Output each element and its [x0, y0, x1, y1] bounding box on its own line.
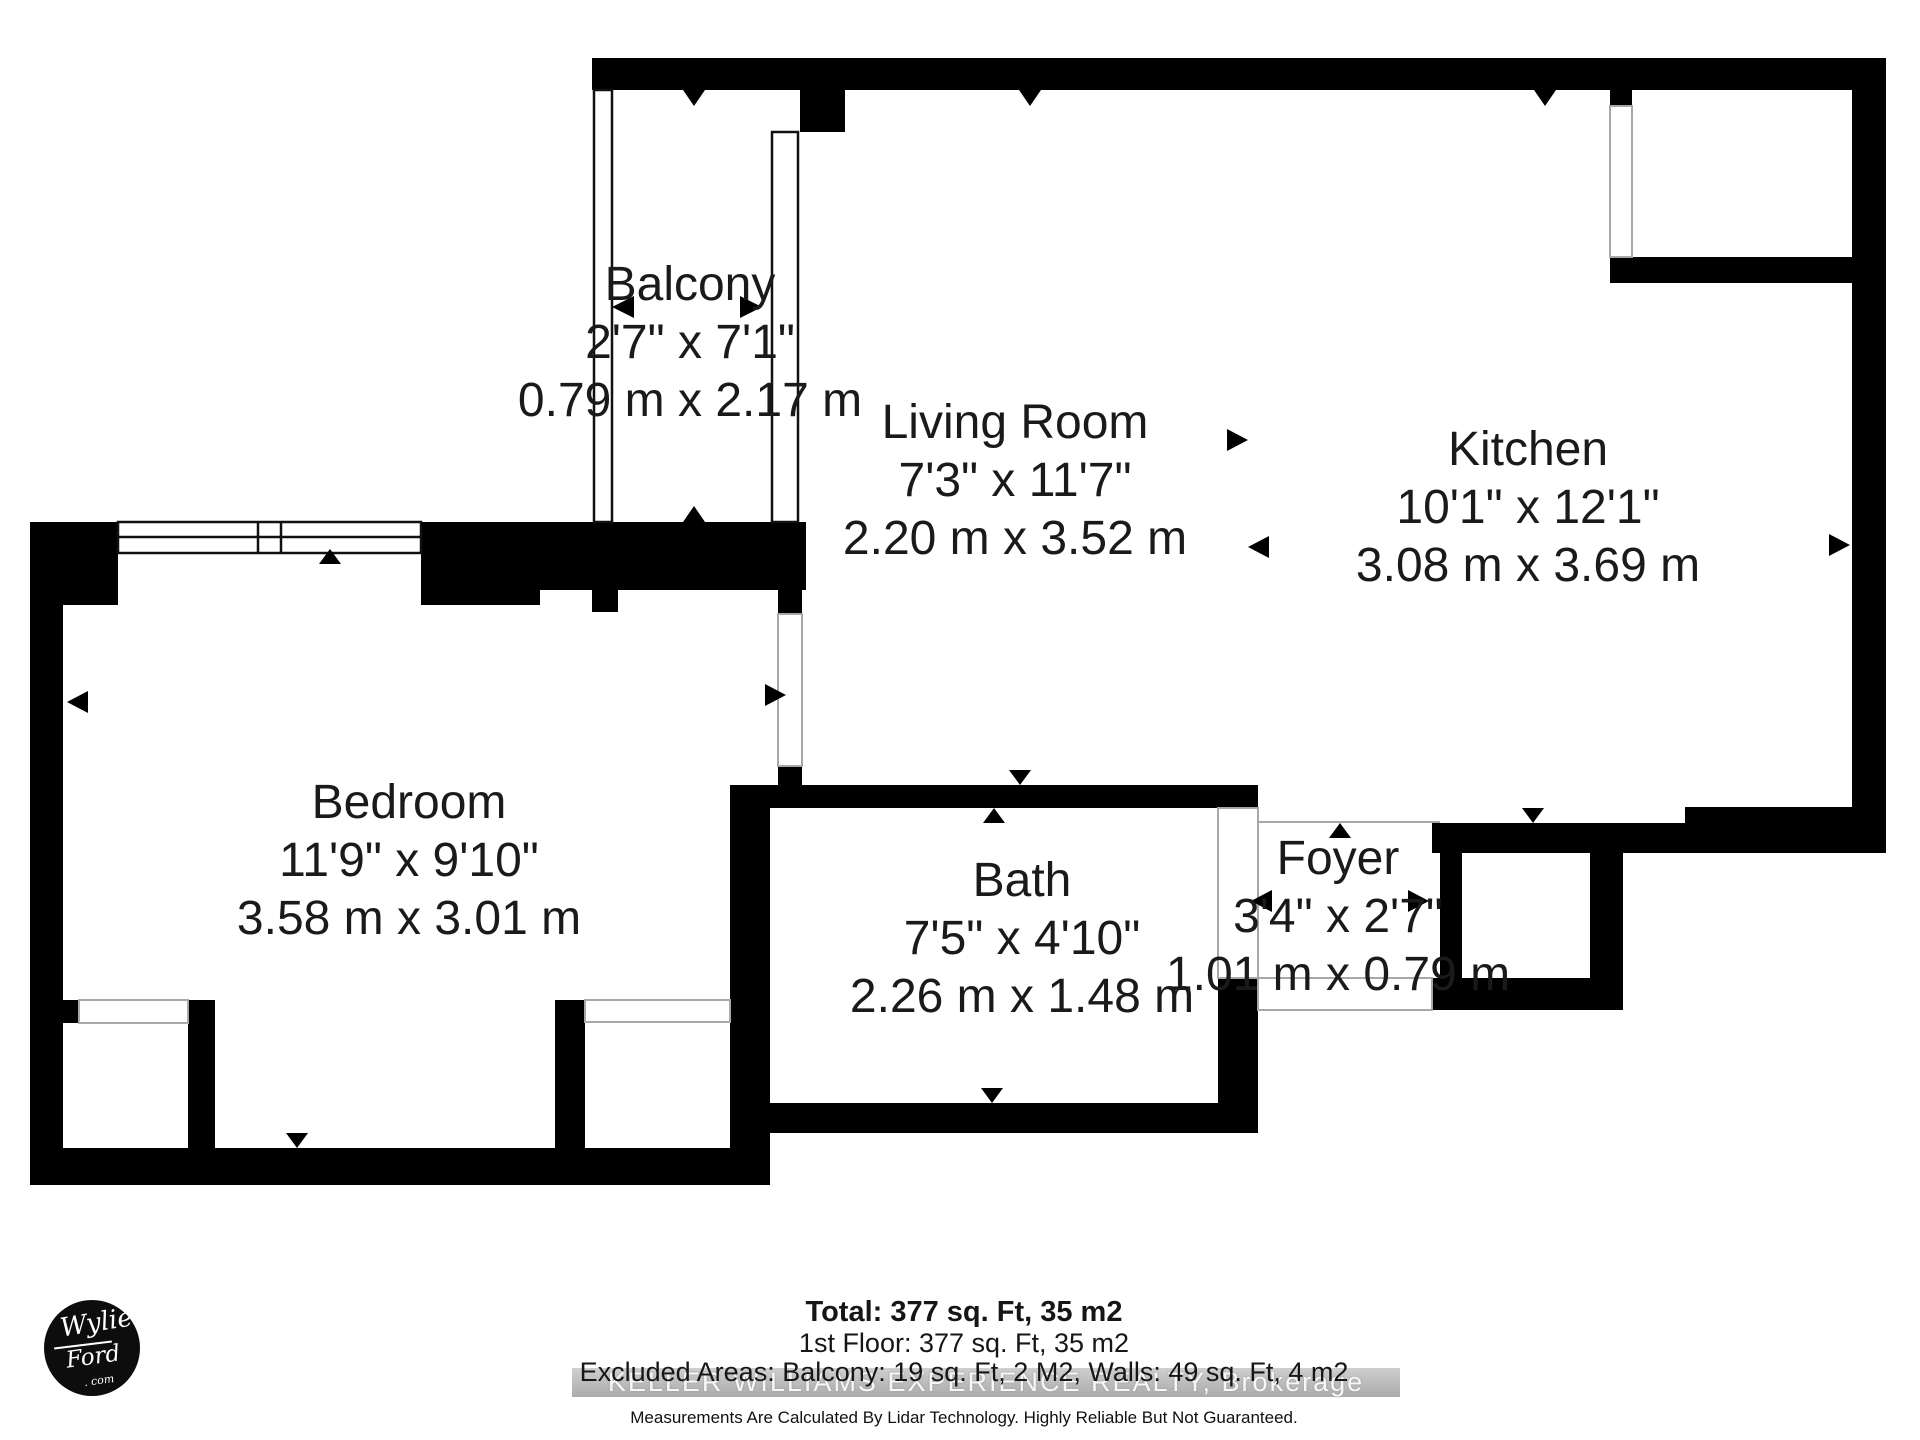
closet-topright-bottom-wall	[1610, 257, 1881, 283]
marker-bath-bottom	[981, 1088, 1003, 1103]
room-label-living-room: Living Room 7'3" x 11'7" 2.20 m x 3.52 m	[795, 394, 1235, 568]
marker-top-b	[1019, 90, 1041, 106]
floorplan-page: Balcony 2'7" x 7'1" 0.79 m x 2.17 m Livi…	[0, 0, 1920, 1440]
wall-top	[592, 58, 1886, 90]
right-closet-left-wall	[555, 1000, 585, 1148]
marker-bedroom-left	[67, 691, 88, 713]
bedroom-bottom-wall	[30, 1148, 770, 1185]
room-label-foyer: Foyer 3'4" x 2'7" 1.01 m x 0.79 m	[1118, 830, 1558, 1004]
disclaimer-text: Measurements Are Calculated By Lidar Tec…	[464, 1408, 1464, 1428]
left-closet-door-opening	[79, 1000, 188, 1023]
right-closet-door-opening	[585, 1000, 730, 1022]
marker-kitchen-right	[1829, 534, 1850, 556]
closet-topright-stub	[1610, 90, 1632, 106]
balcony-partition-tab	[800, 58, 845, 132]
room-name: Kitchen	[1308, 421, 1748, 479]
floorplan-drawing	[0, 0, 1920, 1440]
room-dim-metric: 3.58 m x 3.01 m	[189, 890, 629, 948]
marker-top-c	[1534, 90, 1556, 106]
bedroom-wall-tab	[592, 590, 618, 612]
room-dim-metric: 1.01 m x 0.79 m	[1118, 946, 1558, 1004]
room-dim-metric: 3.08 m x 3.69 m	[1308, 537, 1748, 595]
room-name: Living Room	[795, 394, 1235, 452]
bath-top-wall	[747, 785, 1258, 808]
total-area-text: Total: 377 sq. Ft, 35 m2	[464, 1296, 1464, 1329]
marker-bath-top-down	[1009, 770, 1031, 785]
wall-right	[1852, 58, 1886, 853]
room-dim-imperial: 10'1" x 12'1"	[1308, 479, 1748, 537]
bedroom-left-wall	[30, 522, 63, 1185]
left-closet-right-wall	[188, 1000, 215, 1148]
kitchen-bottom-step-wall	[1685, 807, 1855, 853]
marker-living-left	[1248, 536, 1269, 558]
room-label-kitchen: Kitchen 10'1" x 12'1" 3.08 m x 3.69 m	[1308, 421, 1748, 595]
bedroom-door-jamb-top	[778, 590, 802, 614]
left-closet-jamb	[63, 1000, 79, 1023]
marker-balcony-up	[683, 506, 705, 522]
bedroom-top-wall-a	[421, 522, 540, 605]
bath-left-wall	[730, 785, 770, 1148]
bath-bottom-wall	[730, 1103, 1258, 1133]
excluded-areas-text: Excluded Areas: Balcony: 19 sq. Ft, 2 M2…	[464, 1357, 1464, 1388]
marker-top-a	[683, 90, 705, 106]
logo-line-1: Wylie	[58, 1302, 135, 1343]
room-dim-imperial: 11'9" x 9'10"	[189, 832, 629, 890]
room-label-bedroom: Bedroom 11'9" x 9'10" 3.58 m x 3.01 m	[189, 774, 629, 948]
wylie-ford-logo: Wylie Ford . com	[44, 1300, 140, 1396]
bedroom-door-jamb-bottom	[778, 766, 802, 788]
room-dim-imperial: 2'7" x 7'1"	[470, 314, 910, 372]
logo-line-3: . com	[83, 1372, 115, 1389]
room-dim-imperial: 7'3" x 11'7"	[795, 452, 1235, 510]
marker-bedroom-bottom	[286, 1133, 308, 1148]
marker-kitchen-bottom	[1522, 808, 1544, 823]
bedroom-top-wall-b	[540, 522, 806, 590]
room-name: Balcony	[470, 256, 910, 314]
first-floor-area-text: 1st Floor: 377 sq. Ft, 35 m2	[464, 1328, 1464, 1359]
room-name: Foyer	[1118, 830, 1558, 888]
room-name: Bedroom	[189, 774, 629, 832]
marker-bath-top-up	[983, 808, 1005, 823]
topright-closet-door-opening	[1610, 106, 1632, 257]
bedroom-door-opening	[778, 614, 802, 766]
room-dim-imperial: 3'4" x 2'7"	[1118, 888, 1558, 946]
room-dim-metric: 2.20 m x 3.52 m	[795, 510, 1235, 568]
